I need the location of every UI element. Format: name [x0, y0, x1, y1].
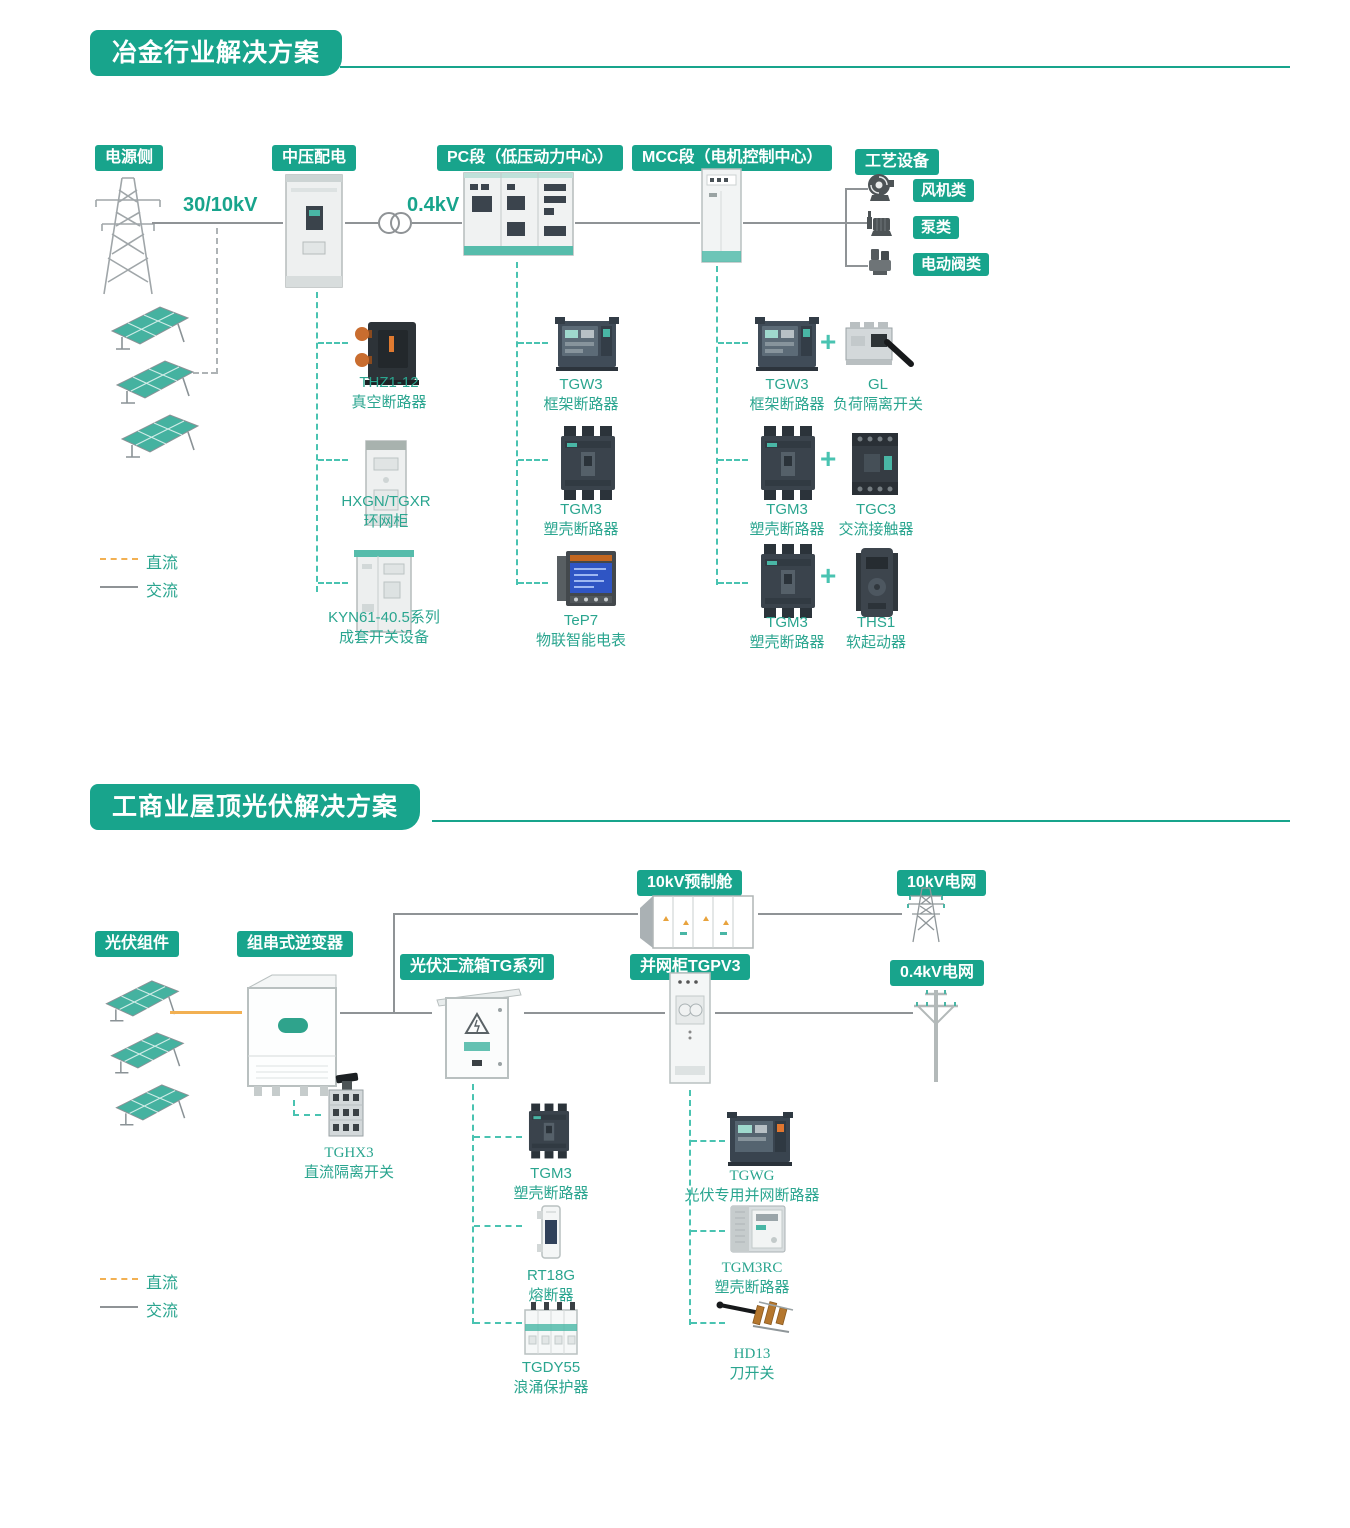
- line-transformer-to-pc: [412, 222, 462, 224]
- label-gl: GL负荷隔离开关: [833, 375, 923, 414]
- dashed-branch: [474, 1136, 522, 1138]
- model: TGM3: [513, 1164, 588, 1184]
- pump-icon: [864, 208, 896, 240]
- pv-combiner-box-image: [432, 980, 524, 1084]
- dashed-column-mv: [316, 292, 318, 592]
- legend-dc-label: 直流: [146, 549, 178, 573]
- legend-ac-line: [100, 1306, 138, 1308]
- model: TeP7: [536, 611, 626, 631]
- tghx3-dc-switch-image: [321, 1072, 371, 1140]
- fan-icon: [864, 172, 896, 204]
- badge-mv-distribution: 中压配电: [272, 145, 356, 171]
- model: TGC3: [838, 500, 913, 520]
- rt18g-fuse-image: [533, 1204, 569, 1260]
- line-mv-to-transformer: [345, 222, 378, 224]
- transmission-tower-image: [88, 172, 168, 297]
- tgm3-mccb-image: [557, 424, 619, 502]
- legend-ac-label: 交流: [146, 577, 178, 601]
- model: KYN61-40.5系列: [328, 608, 440, 628]
- tgwg-pv-breaker-image: [725, 1108, 795, 1168]
- solar-panel-image: [100, 1026, 190, 1074]
- label-ths1: THS1软起动器: [846, 613, 906, 652]
- name: 塑壳断路器: [543, 520, 618, 540]
- name: 成套开关设备: [328, 628, 440, 648]
- model: TGWG: [684, 1167, 819, 1187]
- section1-title-rule: [340, 66, 1290, 68]
- line-combiner-to-cabinet: [524, 1012, 665, 1014]
- solar-panel-image: [95, 974, 185, 1022]
- label-tghx3: TGHX3直流隔离开关: [304, 1144, 394, 1183]
- badge-string-inverter: 组串式逆变器: [237, 931, 353, 957]
- device-bracket-line: [845, 188, 847, 267]
- dashed-branch: [474, 1322, 522, 1324]
- name: 真空断路器: [351, 393, 426, 413]
- hd13-knife-switch-image: [715, 1296, 795, 1338]
- section2-title: 工商业屋顶光伏解决方案: [90, 784, 420, 830]
- label-thz1: THZ1-12真空断路器: [351, 373, 426, 412]
- dashed-branch: [691, 1140, 725, 1142]
- dashed-branch: [318, 582, 348, 584]
- dashed-branch: [318, 342, 348, 344]
- transformer-symbol: [376, 208, 414, 238]
- model: HD13: [729, 1345, 774, 1365]
- dashed-branch: [474, 1225, 522, 1227]
- plus-sign: +: [820, 445, 836, 473]
- dashed-branch: [518, 342, 548, 344]
- dashed-branch: [293, 1114, 321, 1116]
- label-tgw3-pc: TGW3框架断路器: [543, 375, 618, 414]
- label-hd13: HD13刀开关: [729, 1345, 774, 1384]
- plus-sign: +: [820, 328, 836, 356]
- tgdy55-spd-image: [521, 1300, 581, 1356]
- tgc3-contactor-image: [846, 430, 904, 498]
- dashed-column-pc: [516, 262, 518, 585]
- section2-title-rule: [432, 820, 1290, 822]
- solutions-diagram-page: 冶金行业解决方案 电源侧 中压配电 PC段（低压动力中心） MCC段（电机控制中…: [0, 0, 1350, 1528]
- grid-tower-image: [900, 884, 952, 946]
- label-hxgn: HXGN/TGXR环网柜: [341, 492, 430, 531]
- tgw3-acb-image: [553, 313, 621, 373]
- tgm3-mccb-image: [757, 424, 819, 502]
- dashed-branch: [518, 582, 548, 584]
- dc-line-pv-to-inverter: [170, 1011, 242, 1014]
- model: GL: [833, 375, 923, 395]
- dashed-branch: [718, 582, 748, 584]
- name: 物联智能电表: [536, 631, 626, 651]
- model: RT18G: [527, 1266, 575, 1286]
- badge-pv-combiner: 光伏汇流箱TG系列: [400, 954, 554, 980]
- label-tgw3-mcc: TGW3框架断路器: [749, 375, 824, 414]
- utility-pole-image: [908, 982, 964, 1086]
- voltage-0-4kv: 0.4kV: [407, 194, 459, 217]
- dashed-branch: [318, 459, 348, 461]
- model: TGHX3: [304, 1144, 394, 1164]
- label-tgc3: TGC3交流接触器: [838, 500, 913, 539]
- tgw3-acb-image: [753, 313, 821, 373]
- model: TGM3: [543, 500, 618, 520]
- dashed-branch: [691, 1230, 725, 1232]
- badge-power-side: 电源侧: [95, 145, 163, 171]
- label-tgwg: TGWG光伏专用并网断路器: [684, 1167, 819, 1206]
- name: 负荷隔离开关: [833, 395, 923, 415]
- model: TGW3: [543, 375, 618, 395]
- model: TGM3: [749, 500, 824, 520]
- riser-to-cabin: [393, 914, 395, 1014]
- solar-panel-image: [110, 408, 205, 458]
- label-tgm3rc: TGM3RC塑壳断路器: [714, 1259, 789, 1298]
- line-mcc-to-devices: [743, 222, 845, 224]
- legend-dc-label: 直流: [146, 1269, 178, 1293]
- model: HXGN/TGXR: [341, 492, 430, 512]
- name: 直流隔离开关: [304, 1164, 394, 1184]
- solar-panel-image: [100, 300, 195, 350]
- name: 塑壳断路器: [749, 520, 824, 540]
- name: 框架断路器: [543, 395, 618, 415]
- line-inverter-to-combiner: [340, 1012, 432, 1014]
- model: THS1: [846, 613, 906, 633]
- tgm3-mccb-image: [757, 542, 819, 620]
- dashed-column-mcc: [716, 266, 718, 585]
- model: TGM3: [749, 613, 824, 633]
- label-tep7: TeP7物联智能电表: [536, 611, 626, 650]
- dashed-branch: [518, 459, 548, 461]
- line-tower-to-mv: [152, 222, 283, 224]
- name: 交流接触器: [838, 520, 913, 540]
- mv-cabinet-image: [283, 172, 345, 292]
- name: 环网柜: [341, 512, 430, 532]
- label-tgm3-pc: TGM3塑壳断路器: [543, 500, 618, 539]
- dashed-branch: [718, 459, 748, 461]
- gl-load-switch-image: [843, 316, 915, 372]
- legend-ac-label: 交流: [146, 1297, 178, 1321]
- badge-fan-type: 风机类: [913, 179, 974, 202]
- label-tgdy55: TGDY55浪涌保护器: [513, 1358, 588, 1397]
- legend-dc-line: [100, 558, 138, 560]
- legend-ac-line: [100, 586, 138, 588]
- model: TGW3: [749, 375, 824, 395]
- name: 塑壳断路器: [749, 633, 824, 653]
- name: 框架断路器: [749, 395, 824, 415]
- plus-sign: +: [820, 562, 836, 590]
- badge-pump-type: 泵类: [913, 216, 959, 239]
- mcc-cabinet-image: [700, 167, 743, 266]
- ths1-soft-starter-image: [851, 545, 903, 621]
- line-riser-to-cabin: [393, 913, 638, 915]
- tgm3-mccb-image: [526, 1102, 572, 1160]
- prefab-cabin-image: [636, 890, 758, 952]
- badge-pv-modules: 光伏组件: [95, 931, 179, 957]
- grid-connection-cabinet-image: [665, 970, 715, 1090]
- label-tgm3-mcc2: TGM3塑壳断路器: [749, 613, 824, 652]
- section1-title: 冶金行业解决方案: [90, 30, 342, 76]
- line-pc-to-mcc: [575, 222, 700, 224]
- model: TGM3RC: [714, 1259, 789, 1279]
- dashed-branch: [718, 342, 748, 344]
- voltage-30-10kv: 30/10kV: [183, 194, 258, 217]
- name: 浪涌保护器: [513, 1378, 588, 1398]
- badge-pc-section: PC段（低压动力中心）: [437, 145, 623, 171]
- name: 塑壳断路器: [513, 1184, 588, 1204]
- label-tgm3-mcc: TGM3塑壳断路器: [749, 500, 824, 539]
- dashed-column-combiner: [472, 1084, 474, 1324]
- tgm3rc-mccb-image: [728, 1202, 788, 1256]
- line-cabin-to-grid: [758, 913, 902, 915]
- badge-valve-type: 电动阀类: [913, 253, 989, 276]
- dashed-column-gridcab: [689, 1090, 691, 1325]
- solar-panel-image: [105, 1078, 195, 1126]
- model: TGDY55: [513, 1358, 588, 1378]
- line-cabinet-to-pole: [715, 1012, 913, 1014]
- label-kyn61: KYN61-40.5系列成套开关设备: [328, 608, 440, 647]
- model: THZ1-12: [351, 373, 426, 393]
- legend-dc-line: [100, 1278, 138, 1280]
- name: 刀开关: [729, 1365, 774, 1385]
- name: 软起动器: [846, 633, 906, 653]
- tep7-smart-meter-image: [554, 548, 620, 610]
- pc-switchgear-image: [462, 170, 575, 262]
- label-tgm3-pv: TGM3塑壳断路器: [513, 1164, 588, 1203]
- valve-icon: [864, 246, 896, 278]
- dashed-pv-riser: [216, 228, 218, 374]
- solar-panel-image: [105, 354, 200, 404]
